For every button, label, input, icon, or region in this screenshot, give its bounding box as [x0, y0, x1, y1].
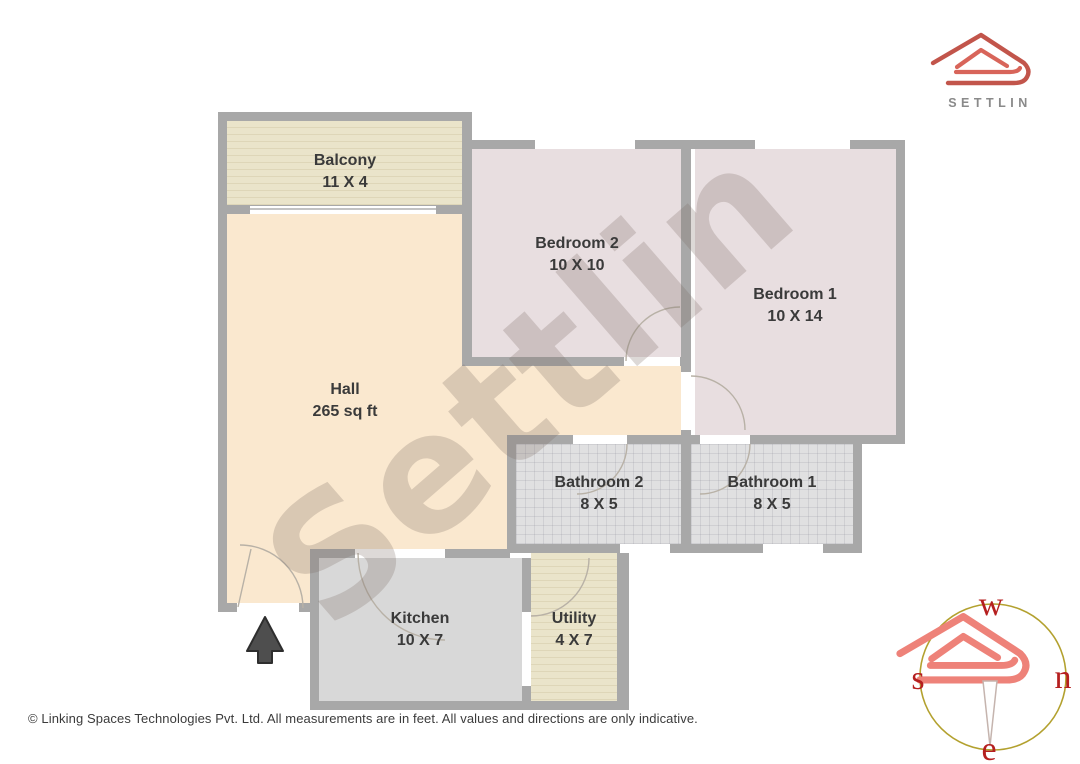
compass-letter-bottom: e [981, 731, 996, 764]
room-name: Balcony [314, 150, 376, 172]
brand-name: SETTLIN [928, 96, 1052, 110]
room-name: Bedroom 1 [753, 284, 837, 306]
compass-letter-left: s [911, 660, 924, 697]
entrance-door-leaf [238, 549, 251, 607]
room-name: Bathroom 1 [728, 472, 817, 494]
room-label-bedroom1: Bedroom 1 10 X 14 [753, 284, 837, 328]
room-name: Bedroom 2 [535, 233, 619, 255]
room-dimensions: 10 X 10 [535, 255, 619, 277]
floorplan-canvas: Settlin Balcony 11 X 4 Hall 265 sq ft Be… [0, 0, 1080, 764]
room-label-kitchen: Kitchen 10 X 7 [391, 608, 450, 652]
room-label-balcony: Balcony 11 X 4 [314, 150, 376, 194]
bedroom1-door-arc [691, 376, 745, 430]
room-dimensions: 4 X 7 [552, 630, 596, 652]
room-dimensions: 10 X 7 [391, 630, 450, 652]
bedroom2-door-arc [626, 307, 680, 361]
room-label-bathroom2: Bathroom 2 8 X 5 [555, 472, 644, 516]
room-dimensions: 11 X 4 [314, 172, 376, 194]
entrance-arrow-icon [243, 613, 288, 668]
room-dimensions: 10 X 14 [753, 306, 837, 328]
room-name: Kitchen [391, 608, 450, 630]
room-dimensions: 8 X 5 [728, 494, 817, 516]
compass-rose: w n s e [872, 574, 1080, 764]
room-label-bathroom1: Bathroom 1 8 X 5 [728, 472, 817, 516]
room-dimensions: 265 sq ft [313, 401, 378, 423]
compass-letter-right: n [1055, 659, 1072, 696]
footer-disclaimer: © Linking Spaces Technologies Pvt. Ltd. … [28, 711, 698, 726]
compass-letter-top: w [979, 586, 1004, 623]
room-label-hall: Hall 265 sq ft [313, 379, 378, 423]
room-label-bedroom2: Bedroom 2 10 X 10 [535, 233, 619, 277]
room-name: Utility [552, 608, 596, 630]
room-name: Hall [313, 379, 378, 401]
room-name: Bathroom 2 [555, 472, 644, 494]
room-label-utility: Utility 4 X 7 [552, 608, 596, 652]
settlin-logo-icon [930, 30, 1032, 94]
room-dimensions: 8 X 5 [555, 494, 644, 516]
